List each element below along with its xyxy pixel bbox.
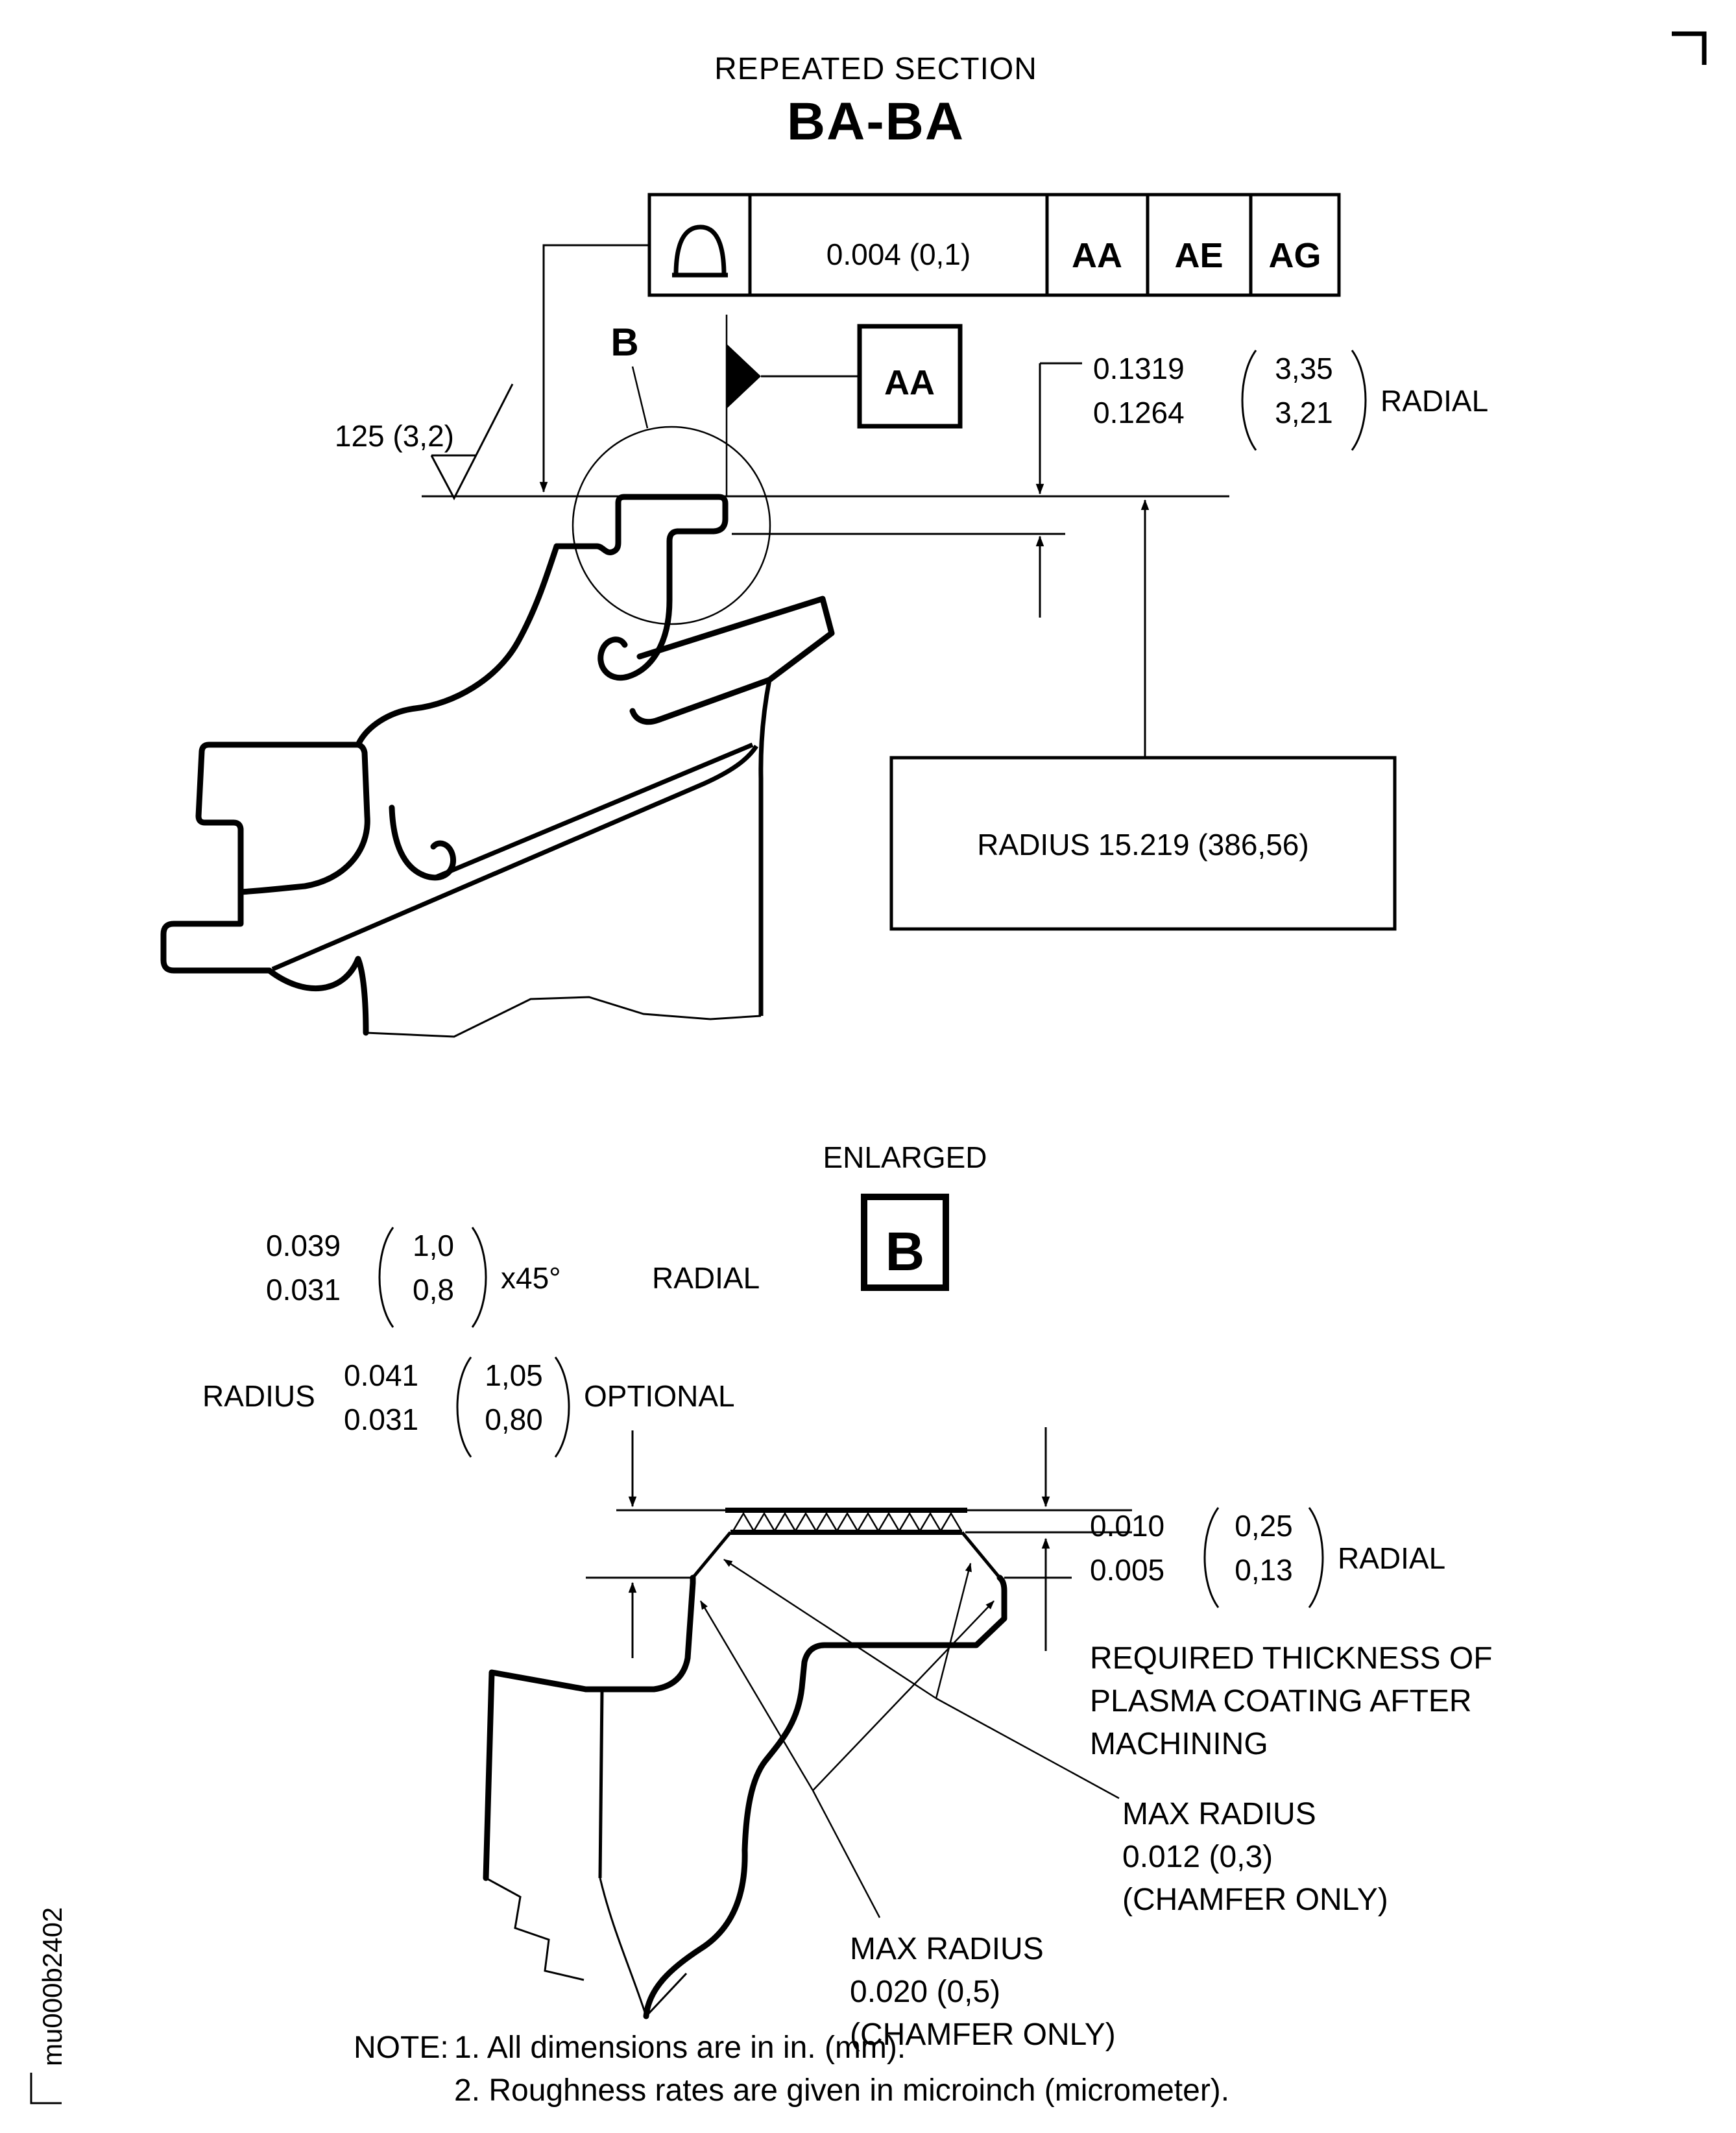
enlarged-label: B — [886, 1221, 925, 1282]
section-title: BA-BA — [787, 92, 965, 151]
max-radius-bottom-callout: MAX RADIUS 0.020 (0,5) (CHAMFER ONLY) — [701, 1601, 1116, 2052]
coating-dim-lower: 0.005 — [1090, 1553, 1164, 1587]
sheet-corner-mark-bottom-left — [31, 2073, 62, 2103]
coating-dim-upper: 0.010 — [1090, 1509, 1164, 1543]
detail-label-leader — [633, 367, 647, 428]
max-radius-top-callout: MAX RADIUS 0.012 (0,3) (CHAMFER ONLY) — [724, 1560, 1388, 1917]
paren-left — [1242, 350, 1256, 450]
note-item-1: 1. All dimensions are in in. (mm). — [454, 2031, 906, 2065]
coating-note-line1: REQUIRED THICKNESS OF — [1090, 1641, 1493, 1676]
note-item-2: 2. Roughness rates are given in microinc… — [454, 2073, 1229, 2108]
radial-dim-suffix: RADIAL — [1380, 384, 1488, 418]
fcf-tolerance: 0.004 (0,1) — [826, 237, 970, 271]
max-radius-top-line2: 0.012 (0,3) — [1122, 1840, 1273, 1874]
chamfer-dim-upper: 0.039 — [266, 1229, 341, 1262]
radial-dim-metric-lower: 3,21 — [1275, 396, 1333, 429]
paren-left — [1205, 1508, 1218, 1608]
left-block-divider — [600, 1691, 602, 1878]
paren-right — [555, 1357, 569, 1457]
sheet-corner-mark-top-right — [1672, 34, 1704, 65]
front-slope — [358, 546, 557, 745]
notes-label: NOTE: — [354, 2031, 449, 2065]
enlarged-break-line-left — [486, 1878, 584, 1980]
radius-note: RADIUS 15.219 (386,56) — [891, 500, 1395, 929]
feature-control-frame: 0.004 (0,1) AA AE AG — [544, 195, 1339, 492]
paren-left — [380, 1227, 393, 1327]
paren-right — [1352, 350, 1366, 450]
datum-flag-label: AA — [884, 363, 935, 402]
optional-radius-upper: 0.041 — [344, 1358, 418, 1392]
coating-dim-metric-upper: 0,25 — [1235, 1509, 1293, 1543]
max-radius-top-line1: MAX RADIUS — [1122, 1797, 1316, 1831]
callout-leader — [813, 1790, 880, 1918]
radial-dim-metric-upper: 3,35 — [1275, 352, 1333, 385]
enlarged-break-line-mid — [600, 1878, 646, 2016]
coating-dim-metric-lower: 0,13 — [1235, 1553, 1293, 1587]
coating-note-line2: PLASMA COATING AFTER — [1090, 1684, 1472, 1718]
body-right-edge — [761, 680, 769, 1016]
enlarged-caption: ENLARGED — [823, 1140, 987, 1174]
seal-tooth-profile — [557, 497, 725, 678]
lower-neck-curve — [646, 1850, 745, 2016]
optional-radius-prefix: RADIUS — [202, 1379, 315, 1413]
section-subtitle: REPEATED SECTION — [714, 52, 1037, 86]
optional-radius-dimension: RADIUS 0.041 0.031 1,05 0,80 OPTIONAL — [202, 1357, 735, 1457]
callout-arrow — [813, 1601, 994, 1790]
surface-finish-value: 125 (3,2) — [335, 419, 454, 453]
chamfer-dim-metric-upper: 1,0 — [413, 1229, 454, 1262]
web-upper-line — [436, 745, 753, 877]
tooth-left-edge — [586, 1578, 693, 1689]
fcf-datum-2: AE — [1174, 236, 1223, 275]
chamfer-dim-metric-lower: 0,8 — [413, 1273, 454, 1307]
callout-arrow — [724, 1560, 936, 1698]
fcf-box — [649, 195, 1339, 295]
profile-of-surface-icon — [672, 227, 728, 275]
optional-radius-metric-upper: 1,05 — [485, 1358, 543, 1392]
drawing-sheet: REPEATED SECTION BA-BA 0.004 (0,1) AA AE… — [0, 0, 1736, 2133]
fcf-datum-3: AG — [1269, 236, 1321, 275]
coating-dimension-text: 0.010 0.005 0,25 0,13 RADIAL — [1090, 1508, 1445, 1608]
max-radius-bottom-line2: 0.020 (0,5) — [850, 1975, 1000, 2009]
coating-hatch — [733, 1513, 961, 1531]
optional-radius-metric-lower: 0,80 — [485, 1403, 543, 1436]
fcf-datum-1: AA — [1072, 236, 1122, 275]
radial-dim-upper: 0.1319 — [1093, 352, 1185, 385]
lower-front-face — [269, 959, 366, 1033]
chamfer-dim-lower: 0.031 — [266, 1273, 341, 1307]
flange-fillet — [241, 745, 367, 892]
second-fin-hook — [392, 808, 453, 878]
max-radius-top-line3: (CHAMFER ONLY) — [1122, 1883, 1388, 1917]
radial-dim-lower: 0.1264 — [1093, 396, 1185, 429]
datum-flag: AA — [727, 315, 960, 496]
max-radius-bottom-line1: MAX RADIUS — [850, 1932, 1044, 1966]
chamfer-left — [693, 1532, 730, 1578]
coating-note: REQUIRED THICKNESS OF PLASMA COATING AFT… — [1090, 1641, 1493, 1761]
paren-right — [1309, 1508, 1323, 1608]
optional-radius-lower: 0.031 — [344, 1403, 418, 1436]
break-line — [366, 997, 761, 1037]
left-flange — [163, 745, 358, 970]
chamfer-dim-suffix: RADIAL — [652, 1261, 760, 1295]
paren-right — [472, 1227, 486, 1327]
radius-note-text: RADIUS 15.219 (386,56) — [977, 828, 1308, 862]
document-code: mu000b2402 — [37, 1907, 67, 2066]
detail-label-b: B — [610, 320, 638, 364]
radial-dimension: 0.1319 0.1264 3,35 3,21 RADIAL — [1040, 350, 1488, 618]
upper-part-outline — [163, 497, 832, 1037]
chamfer-dimension: 0.039 0.031 1,0 0,8 x45° RADIAL — [266, 1227, 760, 1327]
surface-finish-symbol: 125 (3,2) — [335, 384, 512, 498]
left-block — [486, 1672, 586, 1878]
web-lower-line — [272, 746, 756, 969]
callout-arrow — [701, 1601, 813, 1790]
chamfer-dim-angle: x45° — [501, 1261, 561, 1295]
optional-radius-suffix: OPTIONAL — [584, 1379, 735, 1413]
coating-thickness-dims — [633, 1427, 1046, 1658]
datum-triangle-icon — [727, 344, 761, 409]
drawing-canvas: REPEATED SECTION BA-BA 0.004 (0,1) AA AE… — [0, 0, 1736, 2133]
coating-note-line3: MACHINING — [1090, 1727, 1268, 1761]
coating-dim-suffix: RADIAL — [1338, 1541, 1445, 1575]
chamfer-right — [962, 1532, 1000, 1578]
upper-arm-band — [633, 599, 832, 722]
paren-left — [457, 1357, 471, 1457]
